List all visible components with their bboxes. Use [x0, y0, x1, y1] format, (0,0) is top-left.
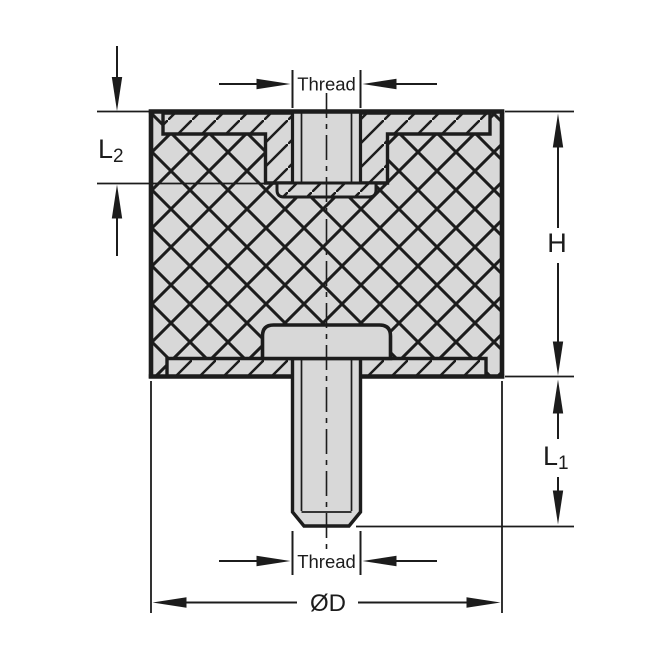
dimension-thread-top: Thread: [219, 70, 437, 108]
l2-label: L2: [98, 134, 124, 167]
diameter-label: ØD: [310, 590, 346, 617]
engineering-drawing-canvas: Thread L2 H L1 Thread: [0, 0, 670, 670]
bobbin-mount-cross-section: Thread L2 H L1 Thread: [0, 0, 670, 670]
dimension-h: H: [505, 112, 574, 377]
dimension-l1: L1: [356, 380, 574, 527]
thread-bottom-label: Thread: [297, 551, 356, 572]
thread-top-label: Thread: [297, 74, 356, 95]
h-label: H: [547, 228, 567, 258]
l1-label: L1: [543, 441, 569, 474]
dimension-thread-bottom: Thread: [219, 531, 437, 575]
